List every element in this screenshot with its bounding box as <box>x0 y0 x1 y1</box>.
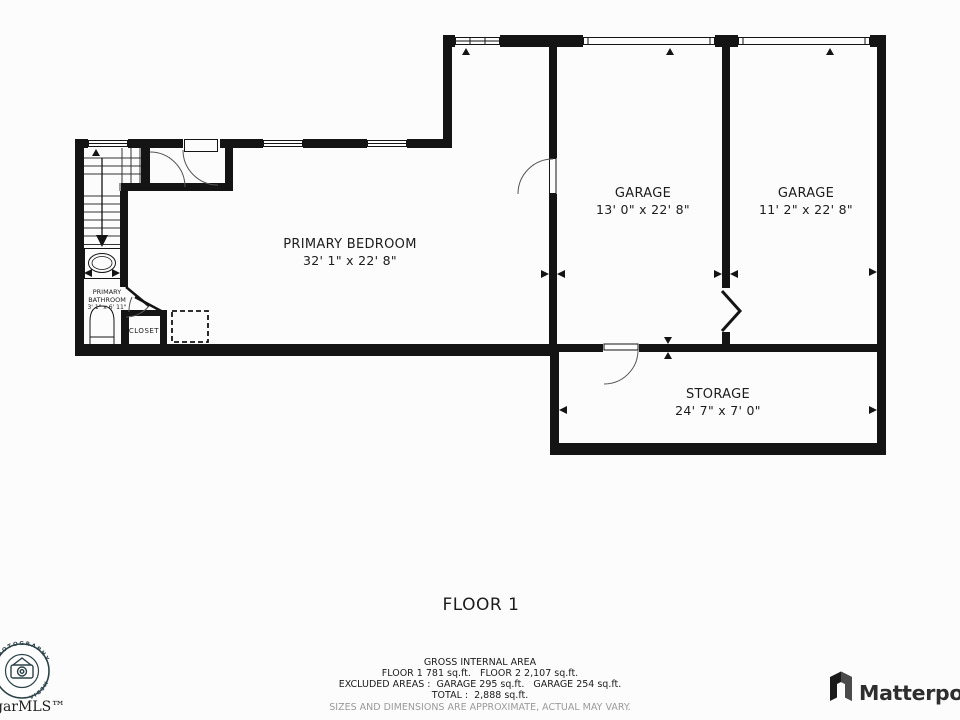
marker-up <box>826 48 834 55</box>
total-area-line: TOTAL : 2,888 sq.ft. <box>230 690 730 701</box>
room-dims-primary-bedroom: 32' 1" x 22' 8" <box>250 253 450 268</box>
room-dims-garage-2: 11' 2" x 22' 8" <box>706 202 906 217</box>
room-label-garage-2: GARAGE <box>706 186 906 201</box>
matterport-wordmark: Matterpo <box>859 681 960 705</box>
matterport-icon <box>830 672 852 702</box>
gross-area-title: GROSS INTERNAL AREA <box>230 657 730 668</box>
door-arc <box>604 350 638 384</box>
door-leaf <box>604 344 638 350</box>
floor-title: FLOOR 1 <box>381 595 581 615</box>
room-dims-storage: 24' 7" x 7' 0" <box>618 403 818 418</box>
marker-right <box>541 270 549 278</box>
room-label-closet: CLOSET <box>121 327 167 335</box>
door-leaf <box>185 140 218 152</box>
floors-area-line: FLOOR 1 781 sq.ft. FLOOR 2 2,107 sq.ft. <box>230 668 730 679</box>
marker-left <box>559 406 567 414</box>
marker-right <box>869 406 877 414</box>
marker-right <box>714 270 722 278</box>
floor-plan-page: PHOTOGRAPHY MEDIA PRIMARY BEDROOM 32' 1"… <box>0 0 960 720</box>
disclaimer-text: SIZES AND DIMENSIONS ARE APPROXIMATE, AC… <box>230 702 730 713</box>
marker-up <box>462 48 470 55</box>
excluded-area-line: EXCLUDED AREAS : GARAGE 295 sq.ft. GARAG… <box>230 679 730 690</box>
wall-markers <box>84 48 877 414</box>
window <box>264 141 303 147</box>
room-label-primary-bathroom: PRIMARY BATHROOM <box>82 289 132 304</box>
mls-wordmark: garMLS™ <box>0 699 65 715</box>
room-label-primary-bedroom: PRIMARY BEDROOM <box>250 237 450 252</box>
area-summary: GROSS INTERNAL AREA FLOOR 1 781 sq.ft. F… <box>230 657 730 713</box>
toilet <box>90 306 114 344</box>
door-arc <box>150 152 185 187</box>
marker-up <box>666 48 674 55</box>
stairs <box>84 148 141 245</box>
sink-basin <box>92 257 112 270</box>
marker-up <box>664 352 672 359</box>
door-leaf <box>135 297 163 312</box>
mls-badge: PHOTOGRAPHY MEDIA <box>0 641 50 700</box>
windows <box>89 38 500 147</box>
room-dims-primary-bathroom: 3' 1" x 6' 11" <box>78 304 136 311</box>
garage-door <box>584 38 715 45</box>
marker-left <box>557 270 565 278</box>
window <box>368 141 407 147</box>
room-label-storage: STORAGE <box>618 387 818 402</box>
marker-down <box>664 337 672 344</box>
window <box>89 141 128 147</box>
garage-door <box>739 38 870 45</box>
marker-right <box>869 268 877 276</box>
dashed-feature <box>172 311 208 342</box>
marker-left <box>730 270 738 278</box>
door-arc <box>183 150 218 185</box>
window <box>456 38 500 45</box>
marker-up <box>92 149 100 156</box>
stair-arrow <box>96 158 108 247</box>
